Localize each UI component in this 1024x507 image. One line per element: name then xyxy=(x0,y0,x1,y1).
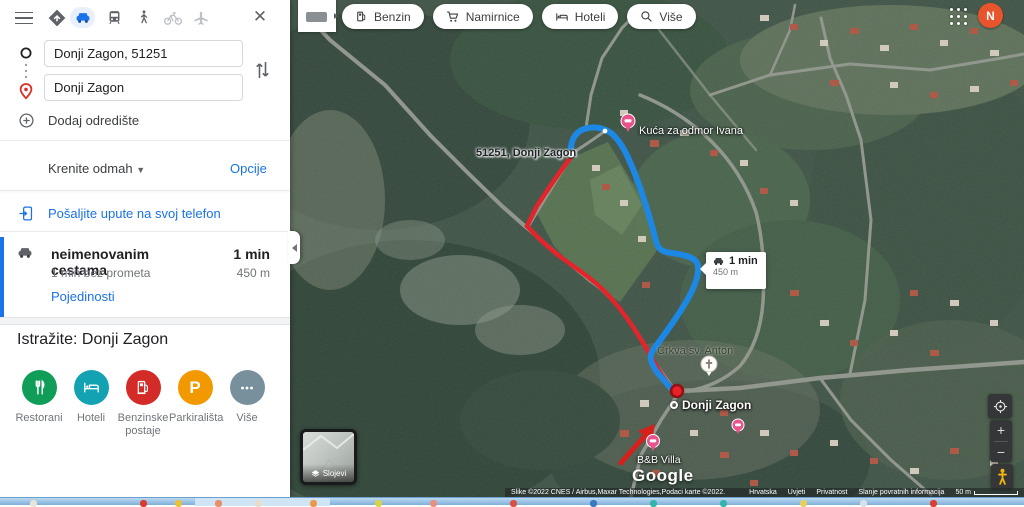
chevron-down-icon: ▼ xyxy=(136,165,145,175)
zoom-control: + − xyxy=(990,420,1012,462)
compass-icon xyxy=(993,399,1008,414)
car-icon xyxy=(16,245,34,261)
taskbar-icon[interactable] xyxy=(650,500,657,507)
layers-label: Slojevi xyxy=(323,469,347,478)
map-attribution: Slike ©2022 CNES / Airbus,Maxar Technolo… xyxy=(505,488,1024,497)
feedback-link[interactable]: Slanje povratnih informacija xyxy=(858,489,944,496)
destination-dot-icon xyxy=(670,401,678,409)
route-waypoint-dot xyxy=(603,129,608,134)
taskbar-icon[interactable] xyxy=(30,500,37,507)
pegman-button[interactable] xyxy=(991,464,1013,489)
taskbar-icon[interactable] xyxy=(860,500,867,507)
gas-pump-icon xyxy=(355,10,368,23)
zoom-in-button[interactable]: + xyxy=(990,420,1012,441)
destination-input[interactable] xyxy=(44,74,243,101)
swap-waypoints-icon[interactable] xyxy=(252,57,272,83)
taskbar-icon[interactable] xyxy=(800,500,807,507)
terms-link[interactable]: Uvjeti xyxy=(788,489,806,496)
country-label: Hrvatska xyxy=(749,489,777,496)
divider xyxy=(0,140,290,141)
bike-mode-icon[interactable] xyxy=(163,8,183,26)
send-to-phone-icon xyxy=(17,204,35,222)
taskbar-icon[interactable] xyxy=(310,500,317,507)
google-maps-window: ✕ Dodaj odredište Krenite odmah ▼ Opcije… xyxy=(0,0,1024,505)
origin-map-label[interactable]: 51251, Donji Zagon xyxy=(476,147,568,159)
taskbar-icon[interactable] xyxy=(430,500,437,507)
restaurant-icon xyxy=(30,378,49,397)
add-destination-label[interactable]: Dodaj odredište xyxy=(48,113,139,128)
send-to-phone-link[interactable]: Pošaljite upute na svoj telefon xyxy=(48,206,221,221)
pegman-icon xyxy=(997,468,1008,485)
car-icon xyxy=(712,256,725,267)
flight-mode-icon[interactable] xyxy=(191,6,211,27)
walk-mode-icon[interactable] xyxy=(136,6,152,28)
badge-distance: 450 m xyxy=(713,267,760,277)
parking-icon: P xyxy=(189,378,200,398)
add-destination-icon[interactable] xyxy=(17,111,35,129)
chip-more[interactable]: Više xyxy=(627,4,695,29)
search-chips: Benzin Namirnice Hoteli Više xyxy=(342,4,696,29)
divider xyxy=(0,190,290,191)
privacy-link[interactable]: Privatnost xyxy=(816,489,847,496)
compass-button[interactable] xyxy=(988,394,1012,418)
menu-icon[interactable] xyxy=(14,10,34,26)
car-mode-icon[interactable] xyxy=(72,8,93,27)
category-parking[interactable]: P Parkirališta xyxy=(169,370,221,425)
cart-icon xyxy=(446,10,460,24)
account-avatar[interactable]: N xyxy=(978,3,1003,28)
destination-pin-icon xyxy=(21,84,32,98)
chip-groceries[interactable]: Namirnice xyxy=(433,4,533,29)
destination-map-label[interactable]: Donji Zagon xyxy=(670,398,751,412)
transit-mode-icon[interactable] xyxy=(105,7,123,27)
destination-marker[interactable] xyxy=(671,385,683,397)
taskbar-icon[interactable] xyxy=(375,500,382,507)
best-route-icon[interactable] xyxy=(47,7,67,29)
selected-route-bar xyxy=(0,237,4,317)
chevron-left-icon xyxy=(292,244,297,252)
taskbar-icon[interactable] xyxy=(215,500,222,507)
category-restaurants[interactable]: Restorani xyxy=(13,370,65,425)
divider xyxy=(0,231,290,232)
hotel-icon xyxy=(82,378,101,397)
taskbar-icon[interactable] xyxy=(140,500,147,507)
chip-gas[interactable]: Benzin xyxy=(342,4,424,29)
origin-input[interactable] xyxy=(44,40,243,67)
section-divider xyxy=(0,317,290,325)
badge-tail xyxy=(700,263,706,275)
scale-bar: 50 m xyxy=(955,489,1018,496)
church-map-label[interactable]: Crkva sv. Anton xyxy=(657,345,733,357)
map-canvas xyxy=(290,0,1024,497)
more-dots-icon xyxy=(238,379,256,397)
lodging-map-label[interactable]: Kuća za odmor Ivana xyxy=(639,125,743,137)
layers-icon xyxy=(311,469,320,478)
category-hotels[interactable]: Hoteli xyxy=(65,370,117,425)
gas-pump-icon xyxy=(134,378,153,397)
diamond-navigate-icon xyxy=(47,8,67,28)
route-distance: 450 m xyxy=(237,266,270,280)
taskbar-icon[interactable] xyxy=(930,500,937,507)
depart-time-dropdown[interactable]: Krenite odmah ▼ xyxy=(48,161,145,176)
chip-hotels[interactable]: Hoteli xyxy=(542,4,619,29)
taskbar-icon[interactable] xyxy=(720,500,727,507)
taskbar-icon[interactable] xyxy=(510,500,517,507)
google-logo: Google xyxy=(632,466,694,486)
search-icon xyxy=(640,10,653,23)
origin-dot-icon xyxy=(21,48,30,57)
taskbar-icon[interactable] xyxy=(590,500,597,507)
explore-title: Istražite: Donji Zagon xyxy=(17,331,168,349)
route-details-link[interactable]: Pojedinosti xyxy=(51,289,115,304)
chevron-right-icon xyxy=(334,13,338,19)
badge-duration: 1 min xyxy=(729,255,758,267)
taskbar-icon[interactable] xyxy=(175,500,182,507)
os-taskbar[interactable] xyxy=(0,497,1024,505)
directions-panel: ✕ Dodaj odredište Krenite odmah ▼ Opcije… xyxy=(0,0,290,497)
collapse-panel-handle[interactable] xyxy=(288,231,300,264)
route-duration-badge[interactable]: 1 min 450 m xyxy=(706,252,766,289)
bnb-map-label[interactable]: B&B Villa xyxy=(637,454,681,466)
bed-icon xyxy=(555,10,569,24)
route-duration: 1 min xyxy=(233,246,270,262)
leftover-widget xyxy=(298,0,336,32)
category-more[interactable]: Više xyxy=(221,370,273,425)
satellite-map[interactable]: Benzin Namirnice Hoteli Više N 51251, Do… xyxy=(290,0,1024,497)
close-directions-icon[interactable]: ✕ xyxy=(251,8,269,26)
imagery-credit: Slike ©2022 CNES / Airbus,Maxar Technolo… xyxy=(511,489,725,496)
waypoint-rail xyxy=(18,44,36,100)
zoom-out-button[interactable]: − xyxy=(990,442,1012,463)
google-apps-icon[interactable] xyxy=(950,8,968,26)
options-link[interactable]: Opcije xyxy=(230,161,267,176)
layers-button[interactable]: Slojevi xyxy=(300,429,357,485)
taskbar-icon[interactable] xyxy=(255,500,262,507)
category-gas-stations[interactable]: Benzinske postaje xyxy=(117,370,169,437)
route-traffic-note: 1 min bez prometa xyxy=(51,266,150,280)
